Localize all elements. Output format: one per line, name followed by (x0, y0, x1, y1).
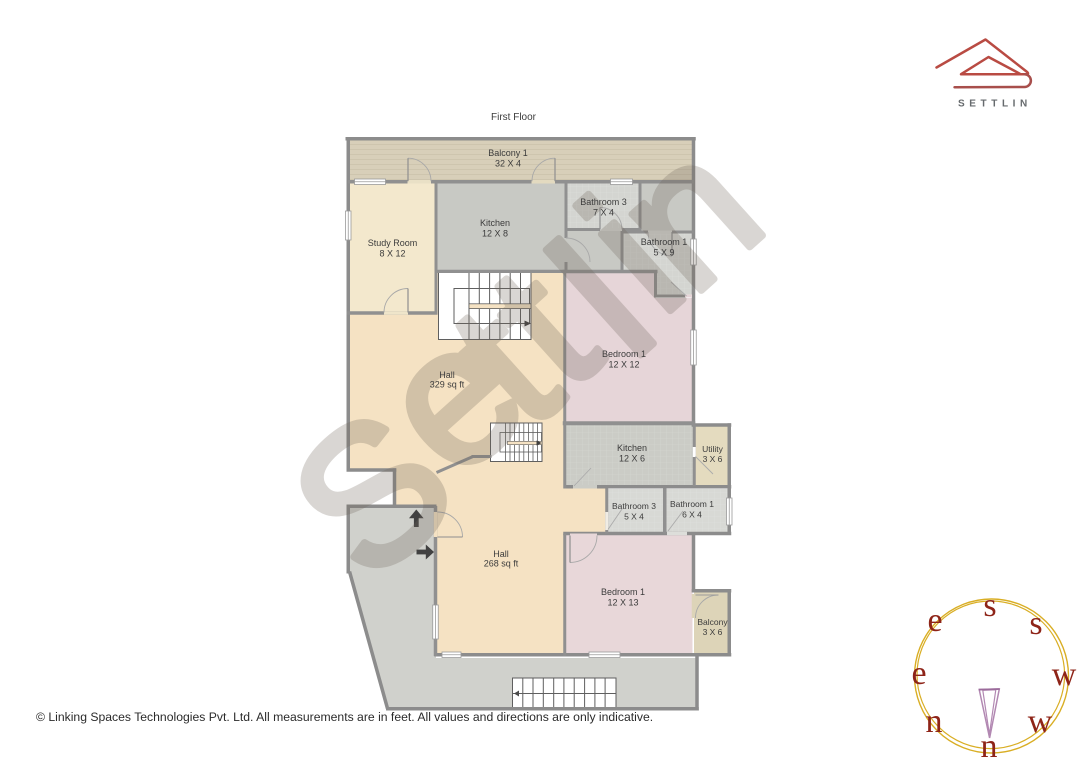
svg-text:e: e (927, 602, 942, 639)
svg-text:Hall: Hall (439, 370, 455, 380)
svg-text:8 X 12: 8 X 12 (379, 249, 405, 259)
svg-text:7 X 4: 7 X 4 (593, 208, 614, 218)
svg-text:12 X 13: 12 X 13 (607, 598, 638, 608)
svg-text:Balcony 1: Balcony 1 (488, 148, 528, 158)
svg-text:Hall: Hall (493, 549, 509, 559)
svg-text:SETTLIN: SETTLIN (958, 99, 1032, 110)
svg-text:32 X 4: 32 X 4 (495, 159, 521, 169)
svg-text:3 X 6: 3 X 6 (703, 627, 723, 637)
svg-text:Bathroom 1: Bathroom 1 (670, 499, 714, 509)
svg-text:s: s (1029, 605, 1042, 642)
svg-text:e: e (911, 655, 926, 692)
svg-text:Bathroom 3: Bathroom 3 (612, 501, 656, 511)
svg-text:Kitchen: Kitchen (617, 443, 647, 453)
svg-text:Utility: Utility (702, 444, 724, 454)
svg-text:329 sq ft: 329 sq ft (430, 380, 465, 390)
svg-text:s: s (983, 587, 996, 624)
svg-text:Bathroom 1: Bathroom 1 (641, 237, 688, 247)
svg-text:268 sq ft: 268 sq ft (484, 559, 519, 569)
svg-text:5 X 9: 5 X 9 (653, 248, 674, 258)
svg-text:12 X 8: 12 X 8 (482, 229, 508, 239)
svg-text:6 X 4: 6 X 4 (682, 510, 702, 520)
svg-text:Study Room: Study Room (368, 238, 418, 248)
svg-text:12 X 6: 12 X 6 (619, 454, 645, 464)
svg-text:Balcony: Balcony (697, 617, 728, 627)
svg-text:Bathroom 3: Bathroom 3 (580, 197, 627, 207)
svg-text:5 X 4: 5 X 4 (624, 512, 644, 522)
svg-text:n: n (981, 728, 998, 764)
svg-text:n: n (926, 703, 943, 740)
svg-text:Bedroom 1: Bedroom 1 (602, 349, 646, 359)
svg-text:© Linking Spaces Technologies: © Linking Spaces Technologies Pvt. Ltd. … (36, 710, 653, 724)
svg-text:12 X 12: 12 X 12 (608, 360, 639, 370)
svg-text:Bedroom 1: Bedroom 1 (601, 587, 645, 597)
svg-text:First Floor: First Floor (491, 112, 537, 123)
svg-text:w: w (1028, 703, 1053, 740)
svg-text:Kitchen: Kitchen (480, 218, 510, 228)
svg-text:3 X 6: 3 X 6 (703, 454, 723, 464)
svg-text:w: w (1052, 656, 1077, 693)
